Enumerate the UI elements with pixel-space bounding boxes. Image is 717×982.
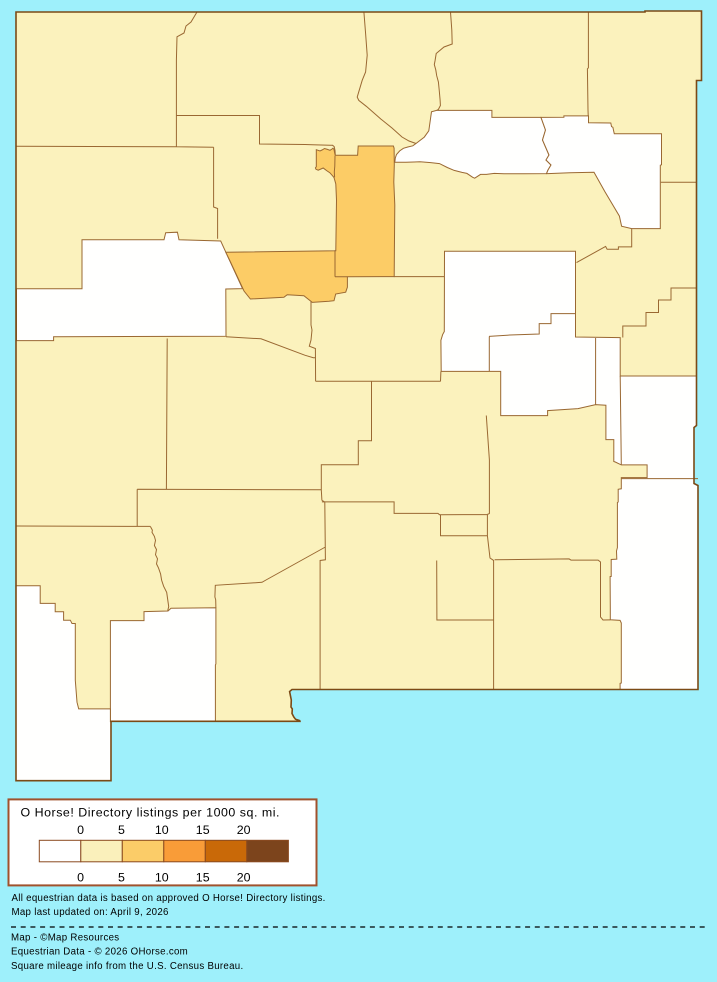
svg-text:15: 15 (196, 871, 210, 885)
svg-text:Square mileage info from the U: Square mileage info from the U.S. Census… (11, 961, 243, 972)
svg-text:15: 15 (196, 823, 210, 837)
svg-text:0: 0 (77, 823, 84, 837)
svg-text:O Horse! Directory listings pe: O Horse! Directory listings per 1000 sq.… (21, 805, 281, 819)
svg-text:10: 10 (155, 823, 169, 837)
svg-text:5: 5 (118, 871, 125, 885)
svg-text:5: 5 (118, 823, 125, 837)
svg-text:20: 20 (237, 823, 251, 837)
svg-text:Map - ©Map Resources: Map - ©Map Resources (11, 932, 119, 943)
svg-text:0: 0 (77, 871, 84, 885)
svg-text:All equestrian data is based o: All equestrian data is based on approved… (12, 893, 326, 904)
svg-text:Map last updated on: April 9,: Map last updated on: April 9, 2026 (12, 907, 169, 918)
svg-text:20: 20 (237, 871, 251, 885)
svg-text:10: 10 (155, 871, 169, 885)
svg-text:Equestrian Data - © 2026 OHors: Equestrian Data - © 2026 OHorse.com (11, 946, 188, 957)
